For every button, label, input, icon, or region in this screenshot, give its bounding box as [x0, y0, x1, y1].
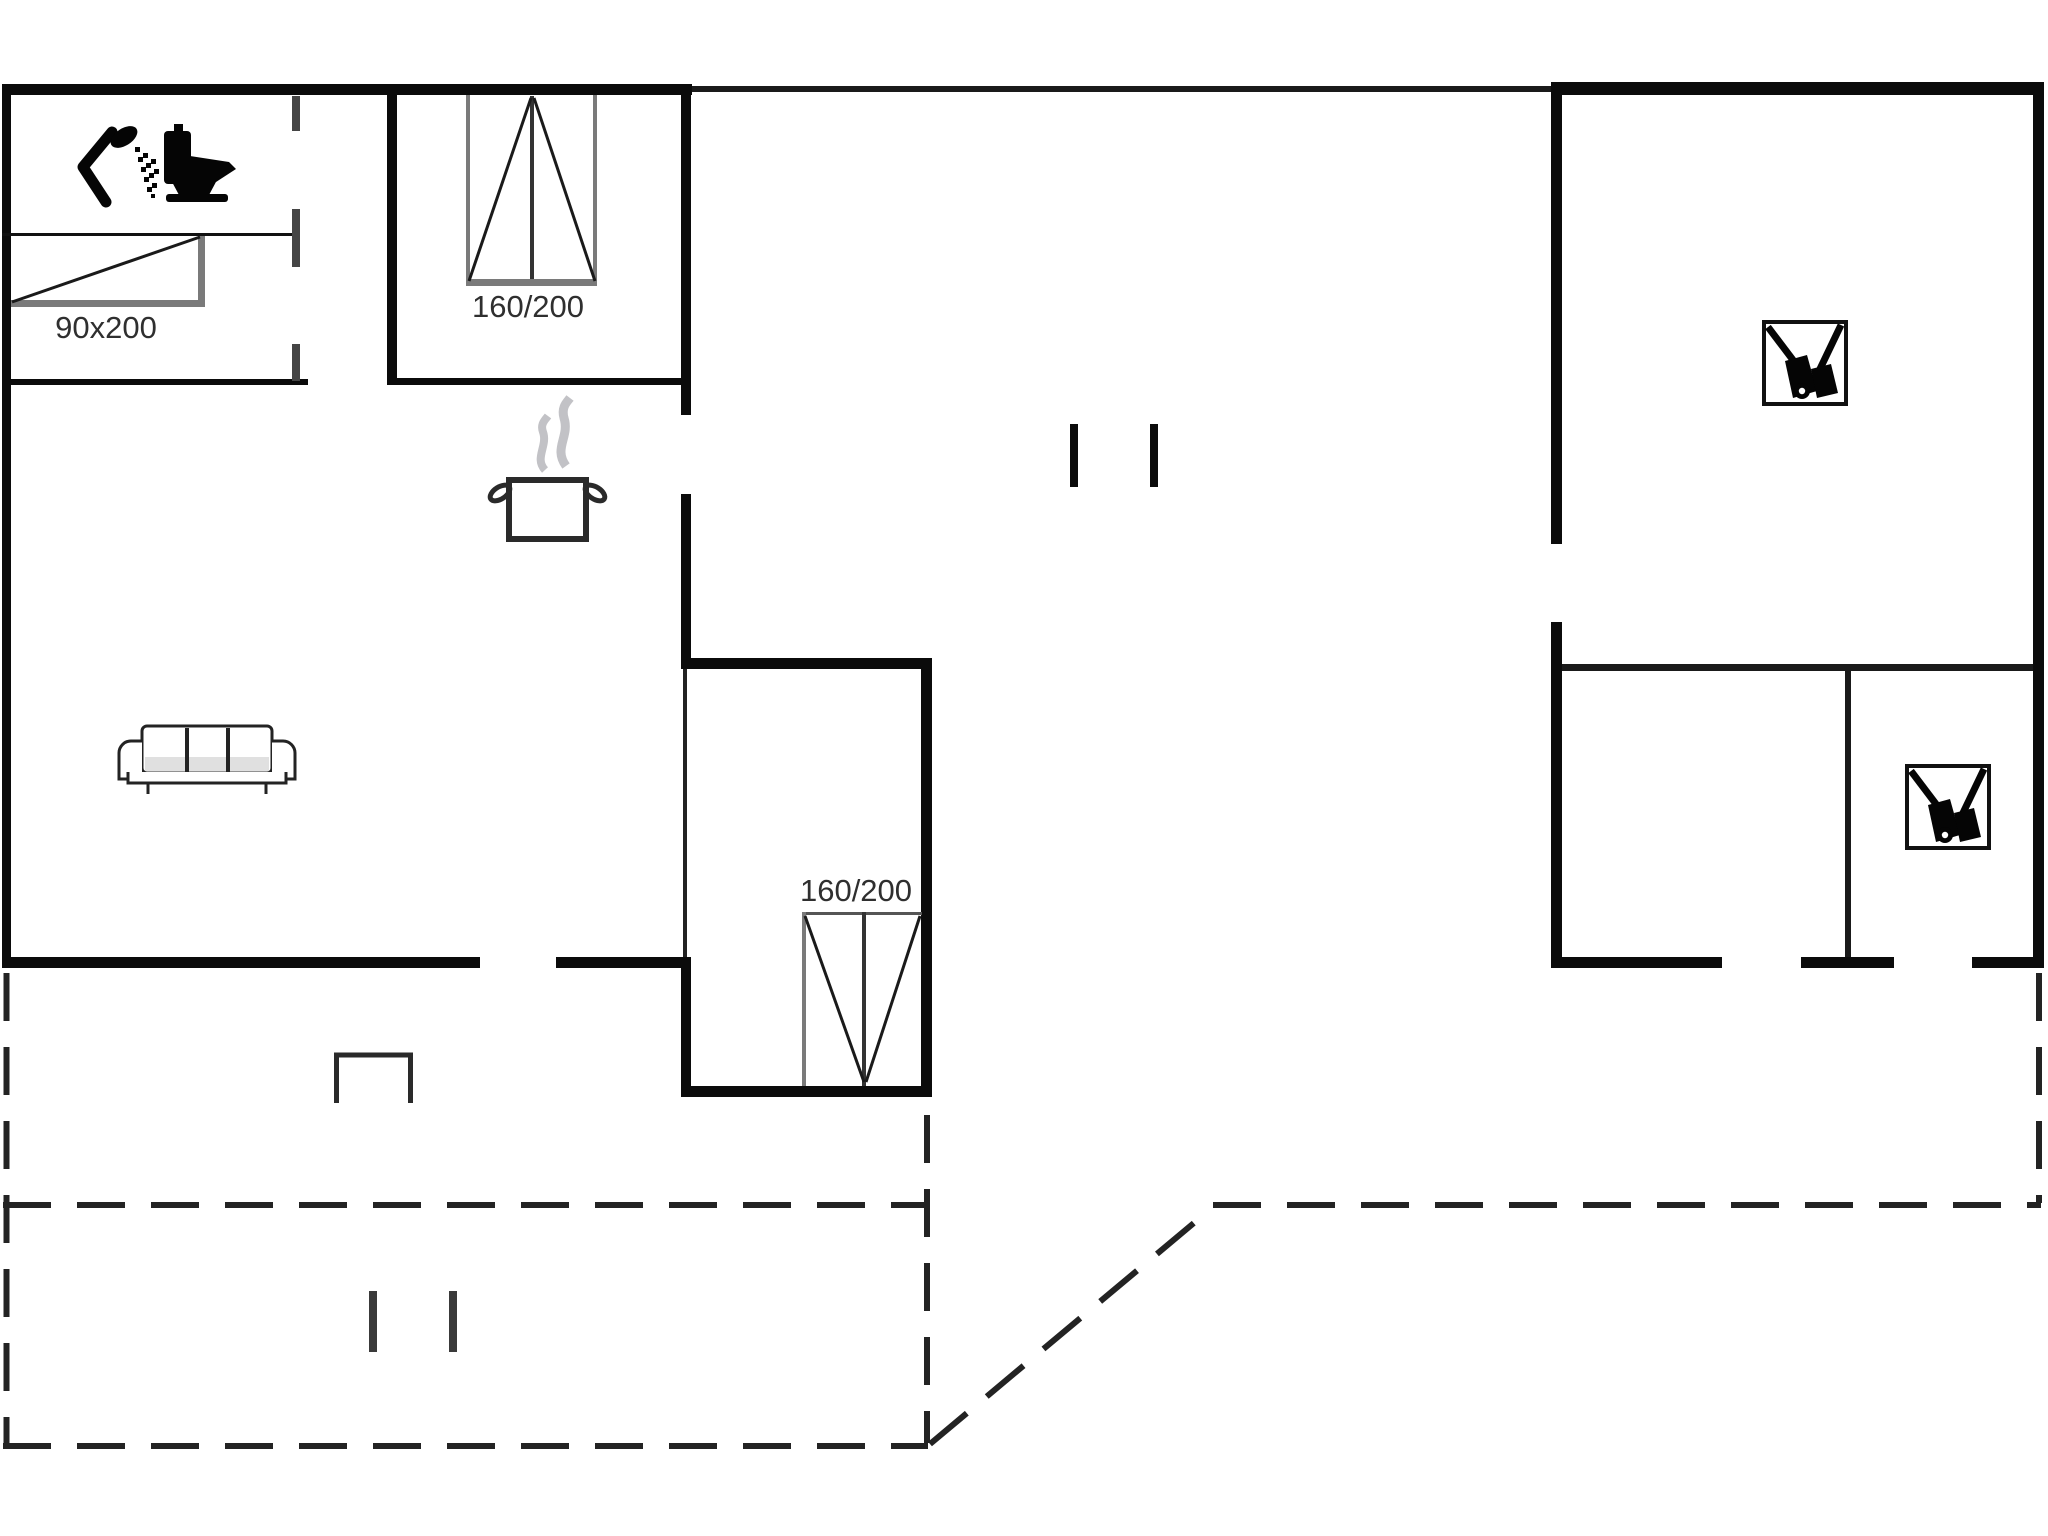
svg-text:90x200: 90x200 — [55, 310, 157, 345]
svg-text:160/200: 160/200 — [472, 289, 584, 324]
svg-text:160/200: 160/200 — [800, 873, 912, 908]
